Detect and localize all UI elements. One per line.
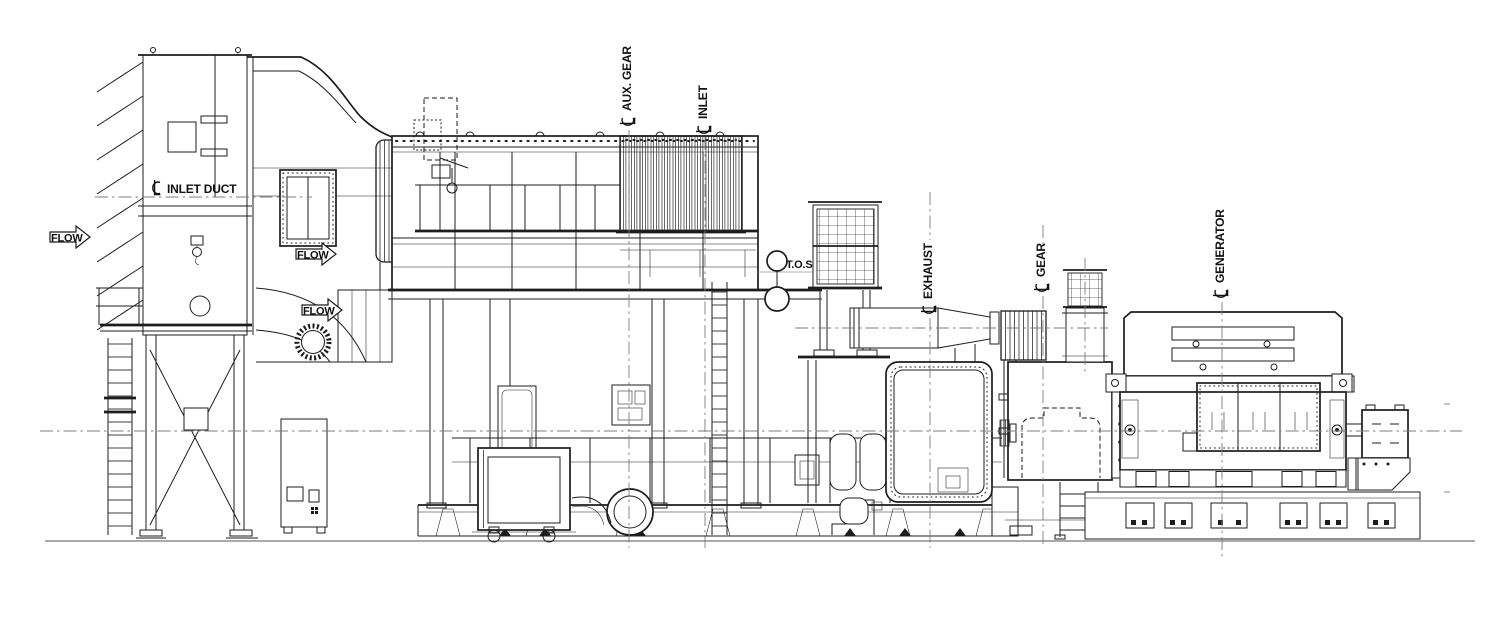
centerline-symbol	[1213, 290, 1228, 298]
inlet-silencer-bank	[616, 136, 746, 238]
inlet-duct-label: INLET DUCT	[167, 182, 237, 196]
electrical-cabinet	[281, 419, 327, 527]
generator-top-housing	[1124, 312, 1342, 376]
generator-frame-band	[1114, 376, 1354, 392]
label-inlet: INLET	[696, 84, 711, 133]
label-exhaust: EXHAUST	[921, 242, 936, 313]
flow-arrow-mid-lower: FLOW	[302, 299, 342, 321]
turbine-platform	[388, 290, 822, 508]
centerline-symbol	[696, 126, 711, 134]
centerline-symbol	[620, 118, 635, 126]
exhaust-collector	[886, 362, 992, 502]
enclosure-ladder	[712, 284, 727, 534]
drawing-canvas: INLET DUCT AUX. GEAR INLET EXHAUST GEAR …	[0, 0, 1509, 630]
access-ladder	[108, 340, 132, 536]
exhaust-label: EXHAUST	[921, 242, 935, 299]
aux-gear-label: AUX. GEAR	[620, 46, 634, 111]
generator	[1085, 312, 1450, 539]
exhaust-bellows	[1001, 311, 1046, 360]
flow-arrow-left: FLOW	[50, 226, 90, 248]
elevation-drawing: INLET DUCT AUX. GEAR INLET EXHAUST GEAR …	[0, 0, 1509, 630]
flow-label: FLOW	[303, 306, 335, 318]
label-generator: GENERATOR	[1213, 209, 1228, 298]
service-cart	[478, 448, 570, 530]
inlet-duct-support-structure	[96, 288, 327, 538]
exciter	[1348, 405, 1410, 490]
inlet-duct-transition	[247, 57, 392, 335]
inlet-label: INLET	[696, 84, 710, 119]
centerline-symbol	[1034, 284, 1049, 292]
flow-label: FLOW	[297, 250, 329, 262]
x-bracing	[150, 350, 240, 525]
tos-label: T.O.S	[786, 259, 813, 271]
generator-label: GENERATOR	[1213, 209, 1227, 283]
label-aux-gear: AUX. GEAR	[620, 46, 635, 126]
flow-label: FLOW	[51, 233, 83, 245]
label-gear: GEAR	[1034, 243, 1049, 292]
inlet-duct-elbow	[256, 288, 392, 362]
gear-label: GEAR	[1034, 243, 1048, 277]
